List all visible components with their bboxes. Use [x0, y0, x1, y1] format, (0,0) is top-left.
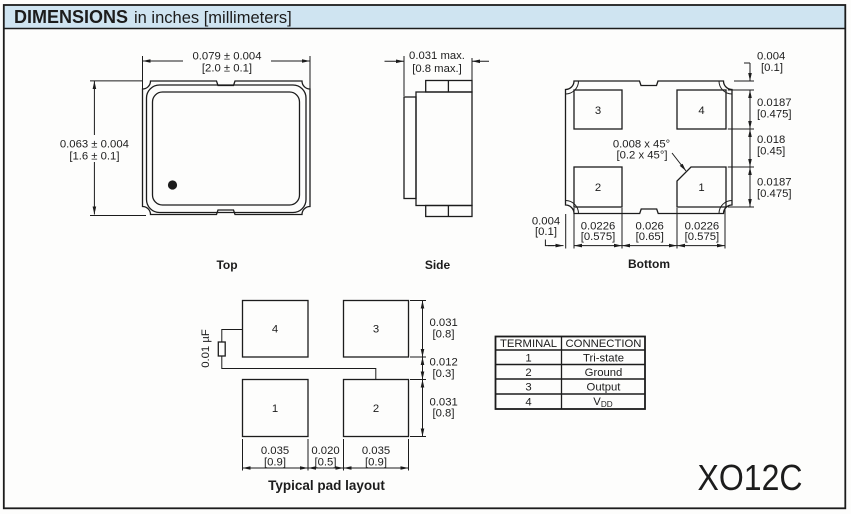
svg-text:4: 4 — [698, 105, 704, 117]
svg-text:[0.5]: [0.5] — [315, 456, 337, 468]
svg-text:0.035: 0.035 — [362, 445, 390, 457]
svg-text:0.035: 0.035 — [261, 445, 289, 457]
svg-text:3: 3 — [525, 381, 531, 393]
svg-text:Side: Side — [425, 258, 451, 272]
svg-text:2: 2 — [525, 367, 531, 379]
svg-text:Top: Top — [216, 258, 237, 272]
svg-text:2: 2 — [595, 182, 601, 194]
svg-text:XO12C: XO12C — [698, 457, 803, 498]
svg-text:3: 3 — [373, 324, 379, 336]
svg-text:Bottom: Bottom — [628, 257, 670, 271]
svg-text:[0.8 max.]: [0.8 max.] — [412, 63, 462, 75]
svg-text:2: 2 — [373, 403, 379, 415]
svg-text:[0.1]: [0.1] — [535, 226, 557, 238]
svg-text:[0.475]: [0.475] — [757, 109, 792, 121]
svg-text:0.0187: 0.0187 — [757, 97, 792, 109]
svg-text:Typical pad layout: Typical pad layout — [268, 478, 385, 493]
svg-text:3: 3 — [595, 105, 601, 117]
svg-text:Output: Output — [587, 381, 622, 393]
svg-text:0.018: 0.018 — [757, 134, 785, 146]
svg-text:DIMENSIONS: DIMENSIONS — [14, 7, 128, 27]
svg-text:0.012: 0.012 — [430, 357, 458, 369]
svg-text:0.004: 0.004 — [757, 51, 785, 63]
svg-text:0.063 ± 0.004: 0.063 ± 0.004 — [60, 139, 129, 151]
svg-text:TERMINAL: TERMINAL — [500, 338, 557, 350]
svg-text:1: 1 — [698, 182, 704, 194]
svg-text:CONNECTION: CONNECTION — [566, 338, 642, 350]
svg-text:1: 1 — [525, 352, 531, 364]
svg-text:4: 4 — [525, 396, 531, 408]
svg-text:[0.9]: [0.9] — [365, 456, 387, 468]
svg-text:[0.2 x 45°]: [0.2 x 45°] — [617, 150, 668, 162]
svg-text:0.031: 0.031 — [430, 317, 458, 329]
svg-text:in inches [millimeters]: in inches [millimeters] — [134, 9, 292, 27]
svg-text:[2.0 ± 0.1]: [2.0 ± 0.1] — [202, 63, 252, 75]
svg-text:Tri-state: Tri-state — [583, 352, 624, 364]
svg-text:0.031 max.: 0.031 max. — [409, 50, 465, 62]
svg-text:[0.1]: [0.1] — [761, 62, 783, 74]
svg-text:[0.8]: [0.8] — [433, 329, 455, 341]
svg-text:0.079 ± 0.004: 0.079 ± 0.004 — [192, 51, 261, 63]
svg-text:[0.45]: [0.45] — [757, 146, 785, 158]
svg-text:1: 1 — [272, 403, 278, 415]
svg-text:[0.65]: [0.65] — [636, 231, 664, 243]
svg-text:[0.9]: [0.9] — [264, 456, 286, 468]
svg-text:[0.8]: [0.8] — [433, 408, 455, 420]
svg-text:[0.475]: [0.475] — [757, 188, 792, 200]
svg-text:4: 4 — [272, 324, 278, 336]
svg-text:0.01 µF: 0.01 µF — [200, 329, 212, 368]
svg-text:0.020: 0.020 — [311, 445, 339, 457]
svg-text:[0.575]: [0.575] — [685, 231, 720, 243]
svg-text:[0.575]: [0.575] — [581, 231, 616, 243]
svg-text:Ground: Ground — [585, 367, 623, 379]
svg-text:0.0187: 0.0187 — [757, 177, 792, 189]
svg-text:[0.3]: [0.3] — [433, 368, 455, 380]
svg-text:[1.6 ± 0.1]: [1.6 ± 0.1] — [69, 151, 119, 163]
